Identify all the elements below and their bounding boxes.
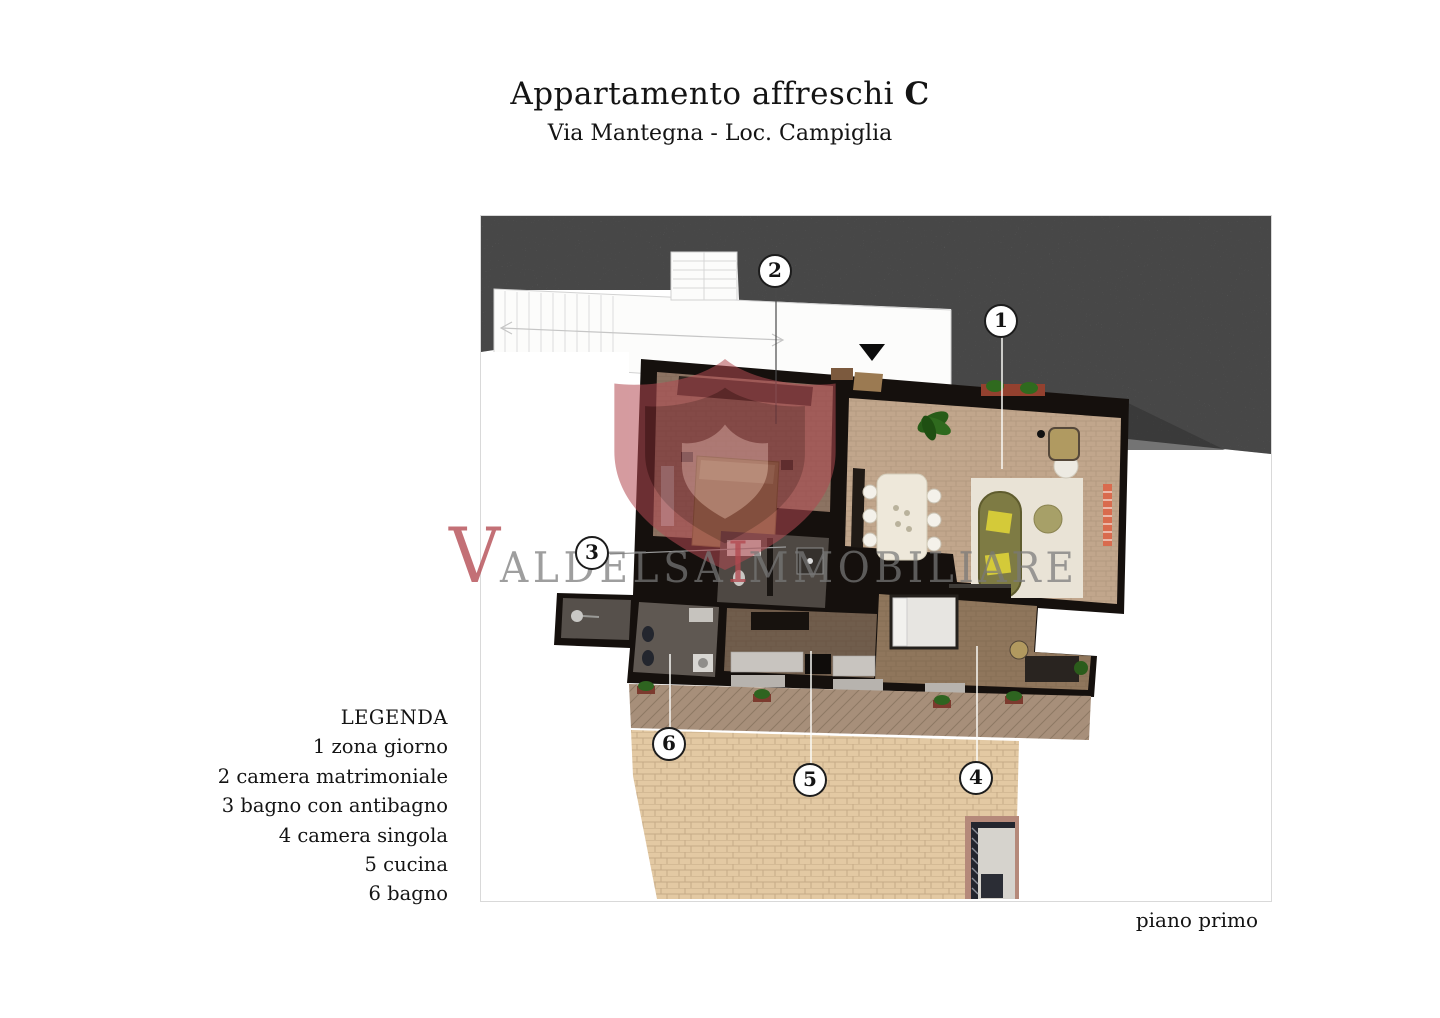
legend-item-4: 4 camera singola — [100, 821, 448, 850]
legend-item-2: 2 camera matrimoniale — [100, 762, 448, 791]
page-title: Appartamento affreschi C — [0, 76, 1440, 112]
legend: LEGENDA 1 zona giorno 2 camera matrimoni… — [100, 703, 448, 909]
skylight — [965, 816, 1019, 899]
callout-2: 2 — [758, 254, 792, 288]
desk-chair — [1010, 641, 1028, 659]
toilet — [642, 626, 654, 642]
legend-item-5: 5 cucina — [100, 850, 448, 879]
toilet — [733, 570, 745, 586]
page-subtitle: Via Mantegna - Loc. Campiglia — [0, 121, 1440, 146]
legend-item-6: 6 bagno — [100, 879, 448, 908]
armchair — [1049, 428, 1079, 460]
title-main: Appartamento affreschi — [510, 76, 904, 112]
range — [805, 654, 831, 674]
room-bagno-antibagno — [717, 531, 829, 608]
header: Appartamento affreschi C Via Mantegna - … — [0, 76, 1440, 146]
radiator — [1103, 484, 1112, 546]
terrace — [629, 681, 1091, 899]
kitchen-island — [751, 612, 809, 630]
room-cucina — [724, 608, 877, 678]
entrance-door — [853, 372, 883, 392]
legend-heading: LEGENDA — [100, 703, 448, 732]
sofa — [979, 492, 1021, 598]
sideboard — [851, 468, 865, 548]
bathroom-sink — [689, 608, 713, 622]
floor-label: piano primo — [1000, 908, 1258, 932]
callout-6: 6 — [652, 727, 686, 761]
shower-head — [571, 610, 583, 622]
floor-plan-sheet: Appartamento affreschi C Via Mantegna - … — [0, 0, 1440, 1018]
legend-item-1: 1 zona giorno — [100, 732, 448, 761]
callout-5: 5 — [793, 763, 827, 797]
callout-3: 3 — [575, 536, 609, 570]
desk — [1025, 656, 1079, 682]
kitchen-counter — [731, 652, 803, 672]
pouf — [1034, 505, 1062, 533]
callout-4: 4 — [959, 761, 993, 795]
legend-item-3: 3 bagno con antibagno — [100, 791, 448, 820]
bidet — [642, 650, 654, 666]
bench — [661, 466, 674, 526]
title-bold: C — [904, 76, 929, 112]
callout-1: 1 — [984, 304, 1018, 338]
